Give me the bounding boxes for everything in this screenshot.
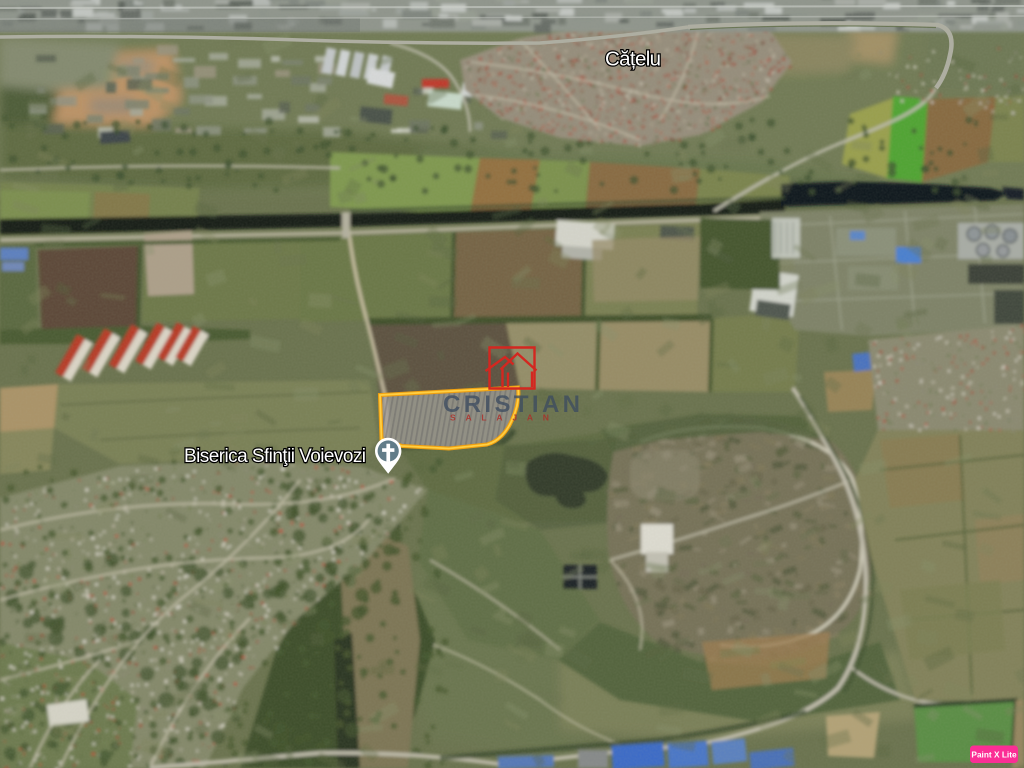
svg-text:Cățelu: Cățelu <box>605 48 661 71</box>
svg-text:Paint X Lite: Paint X Lite <box>971 750 1017 760</box>
svg-text:Biserica Sfinţii Voievozi: Biserica Sfinţii Voievozi <box>184 446 366 467</box>
svg-text:SALAJAN: SALAJAN <box>450 413 559 423</box>
